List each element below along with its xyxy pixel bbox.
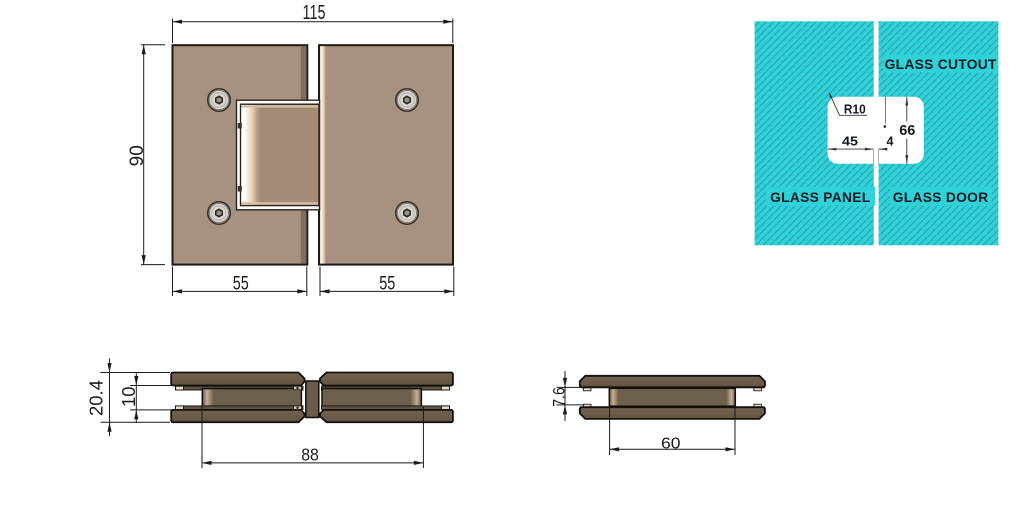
svg-text:55: 55 — [379, 273, 395, 294]
svg-text:88: 88 — [301, 445, 319, 465]
svg-text:4: 4 — [887, 135, 894, 149]
svg-text:90: 90 — [127, 145, 148, 166]
svg-text:60: 60 — [661, 435, 681, 452]
svg-text:66: 66 — [899, 123, 915, 139]
svg-text:7.6: 7.6 — [550, 387, 569, 407]
svg-text:GLASS DOOR: GLASS DOOR — [893, 190, 989, 205]
svg-text:GLASS PANEL: GLASS PANEL — [770, 190, 870, 205]
svg-text:R10: R10 — [844, 102, 866, 117]
svg-text:45: 45 — [842, 135, 858, 149]
svg-text:55: 55 — [233, 273, 249, 294]
svg-text:115: 115 — [303, 2, 326, 24]
svg-text:20.4: 20.4 — [86, 380, 107, 416]
svg-text:GLASS CUTOUT: GLASS CUTOUT — [885, 57, 997, 72]
svg-text:10: 10 — [118, 386, 139, 407]
